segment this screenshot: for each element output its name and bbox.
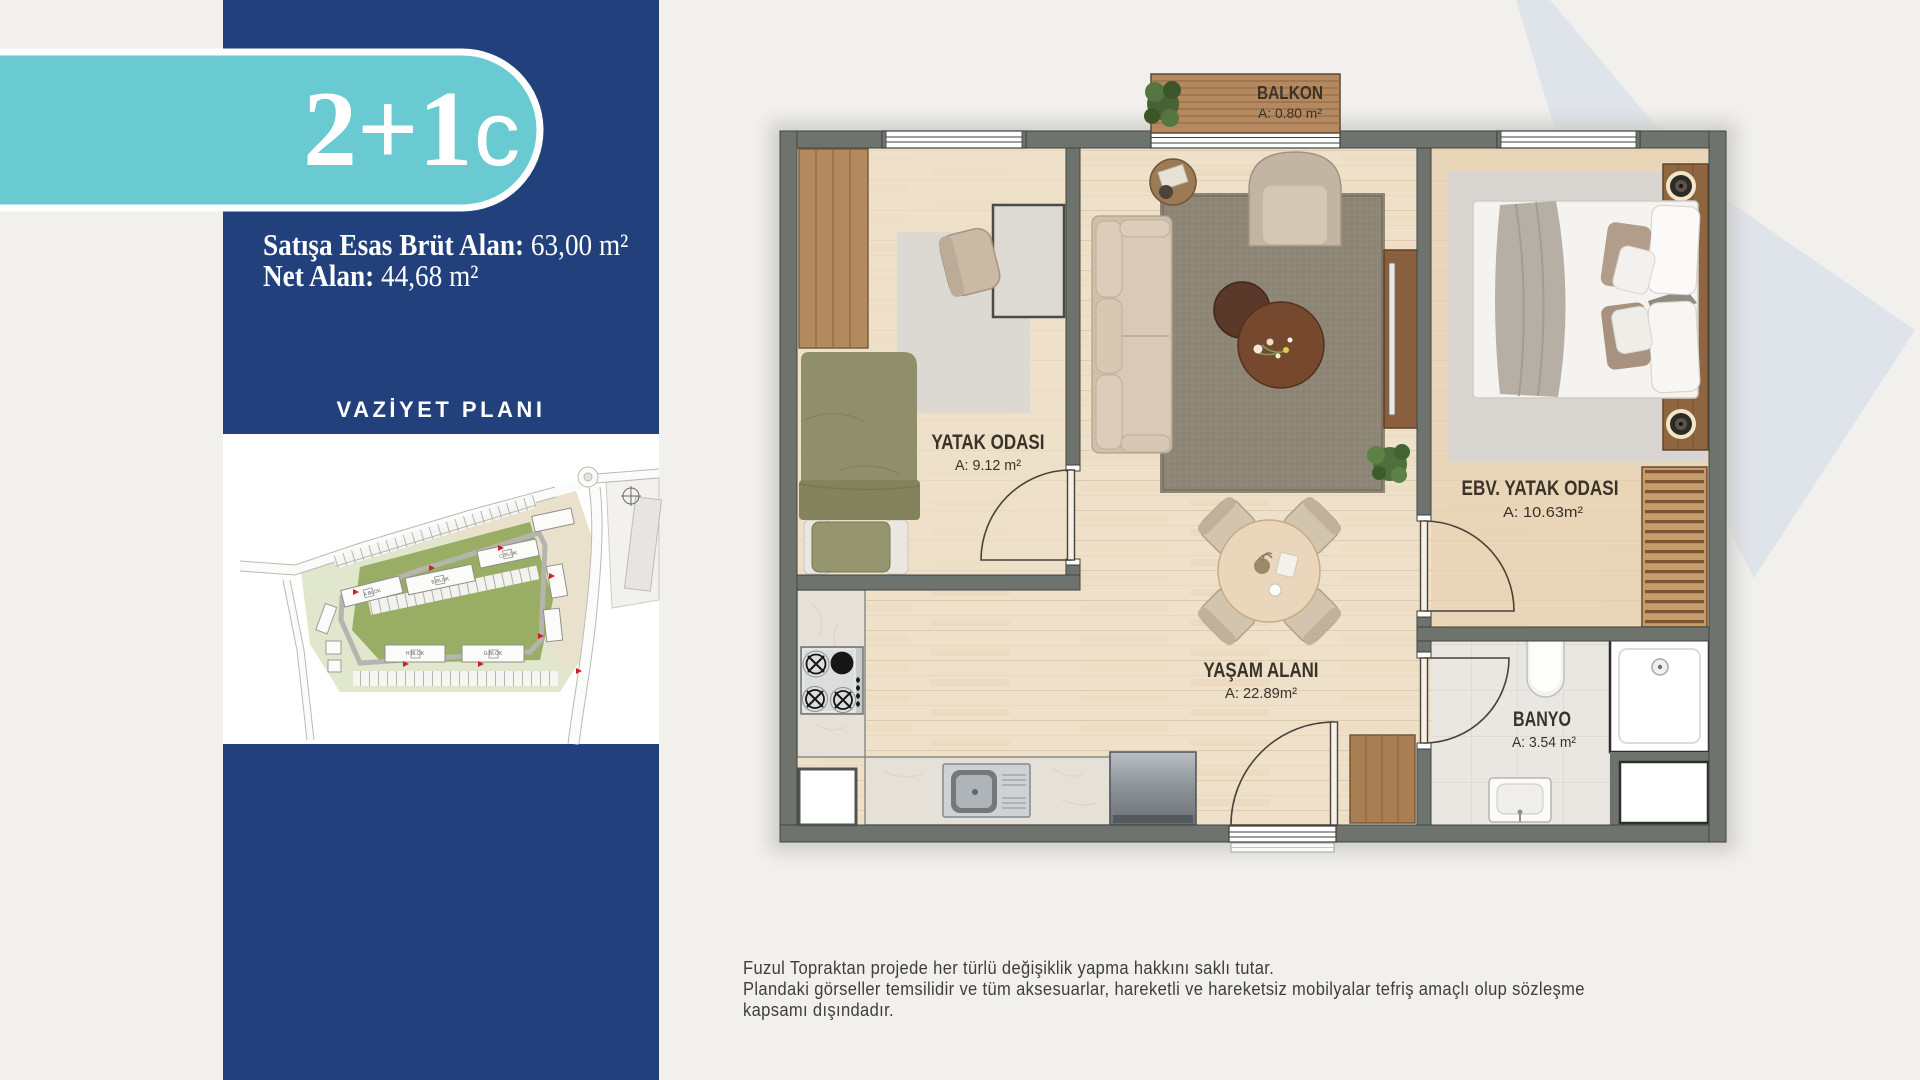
- svg-text:Satışa Esas Brüt Alan: 63,00 m: Satışa Esas Brüt Alan: 63,00 m²: [263, 228, 629, 262]
- svg-text:A: 0.80 m²: A: 0.80 m²: [1258, 105, 1322, 121]
- svg-text:A: 3.54 m²: A: 3.54 m²: [1512, 734, 1576, 751]
- svg-text:YATAK ODASI: YATAK ODASI: [932, 431, 1045, 454]
- svg-text:Net Alan: 44,68 m²: Net Alan: 44,68 m²: [263, 259, 479, 293]
- svg-text:A: 10.63m²: A: 10.63m²: [1503, 504, 1583, 521]
- svg-text:H BLOK: H BLOK: [406, 651, 425, 657]
- svg-text:G BLOK: G BLOK: [484, 651, 503, 657]
- svg-text:BANYO: BANYO: [1513, 708, 1571, 731]
- svg-text:Fuzul Topraktan projede her tü: Fuzul Topraktan projede her türlü değişi…: [743, 957, 1274, 978]
- svg-text:kapsamı dışındadır.: kapsamı dışındadır.: [743, 999, 894, 1020]
- svg-text:EBV. YATAK ODASI: EBV. YATAK ODASI: [1462, 477, 1619, 500]
- svg-text:A: 9.12 m²: A: 9.12 m²: [955, 457, 1021, 474]
- svg-text:BALKON: BALKON: [1257, 83, 1323, 103]
- svg-text:2+1: 2+1: [303, 70, 473, 189]
- svg-text:A: 22.89m²: A: 22.89m²: [1225, 685, 1297, 702]
- svg-text:VAZİYET PLANI: VAZİYET PLANI: [337, 397, 546, 422]
- svg-text:YAŞAM ALANI: YAŞAM ALANI: [1204, 659, 1319, 682]
- svg-text:Plandaki görseller temsilidir: Plandaki görseller temsilidir ve tüm aks…: [743, 978, 1585, 999]
- svg-text:c: c: [474, 83, 520, 185]
